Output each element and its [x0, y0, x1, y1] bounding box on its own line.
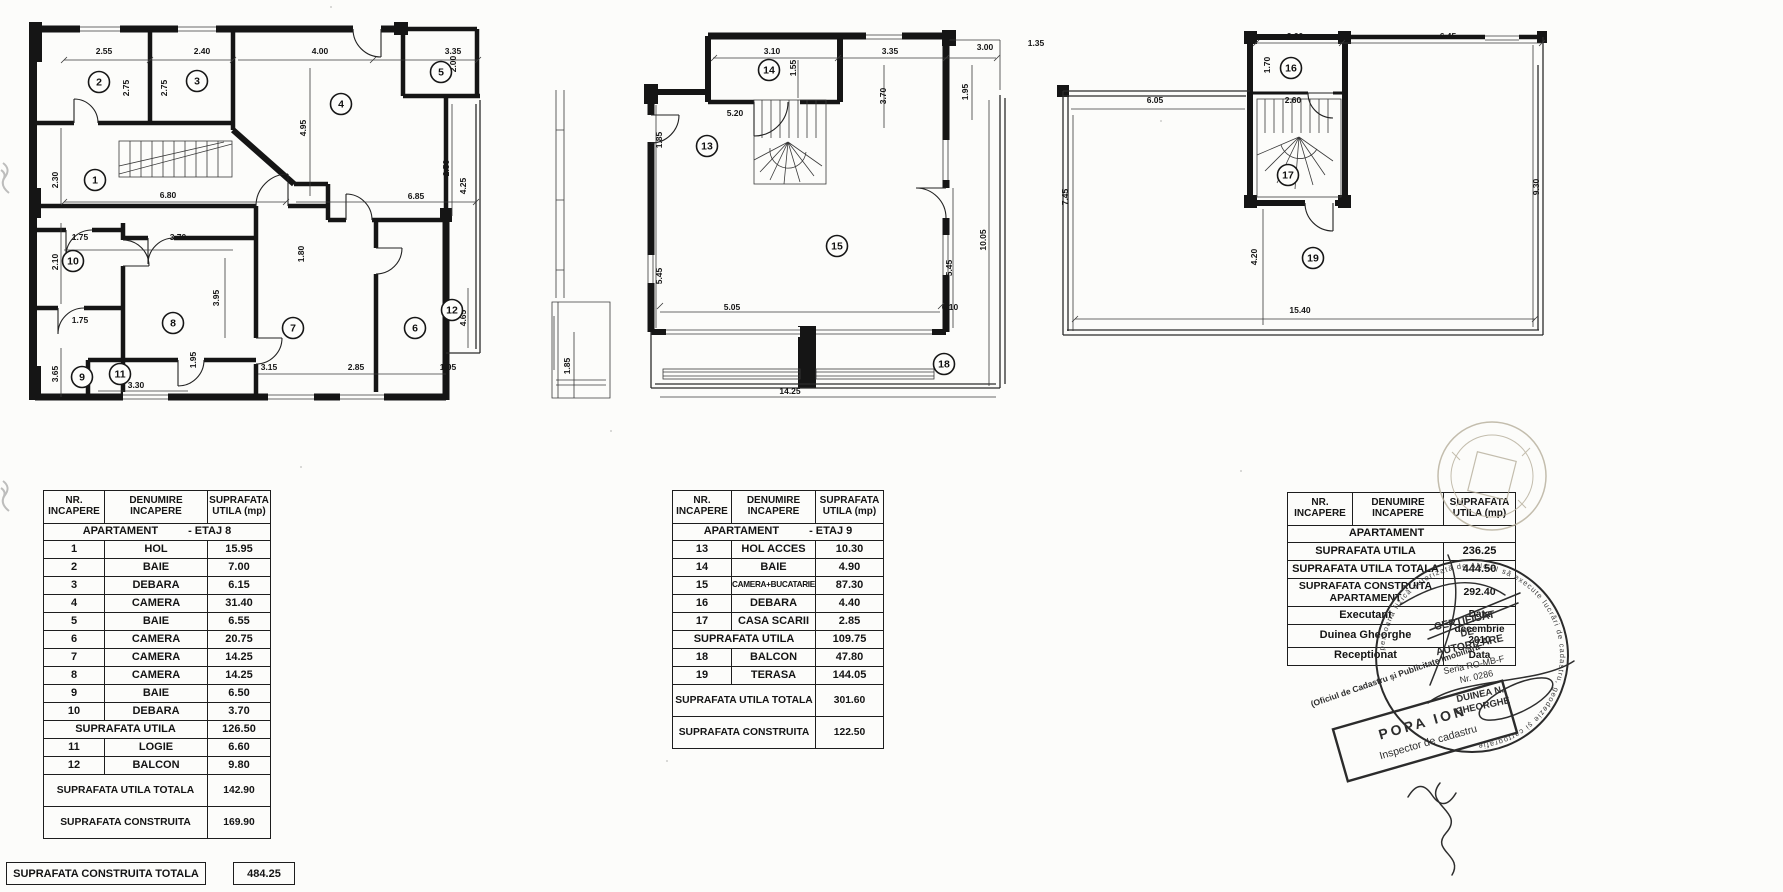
table-row: 11LOGIE6.60 — [44, 739, 271, 757]
total-label: SUPRAFATA UTILA — [44, 721, 208, 739]
dimension-label: 4.20 — [1249, 248, 1259, 265]
dimension-label: 3.10 — [764, 46, 781, 56]
column-header: SUPRAFATA UTILA (mp) — [208, 491, 271, 524]
room-name: DEBARA — [105, 703, 208, 721]
dimension-label: 5.20 — [727, 108, 744, 118]
dimension-label: 4.25 — [458, 177, 468, 194]
dimension-label: 2.75 — [121, 79, 131, 96]
dust-speck — [1240, 470, 1242, 472]
room-area: 6.60 — [208, 739, 271, 757]
table-row: 6CAMERA20.75 — [44, 631, 271, 649]
room-area: 3.70 — [208, 703, 271, 721]
table-row: 9BAIE6.50 — [44, 685, 271, 703]
dimension-label: 1.85 — [562, 357, 572, 374]
room-area: 14.25 — [208, 667, 271, 685]
room-name: LOGIE — [105, 739, 208, 757]
footer-total-label: SUPRAFATA CONSTRUITA TOTALA — [6, 862, 206, 885]
dimension-label: 3.30 — [128, 380, 145, 390]
column-header: DENUMIRE INCAPERE — [105, 491, 208, 524]
room-number: 5 — [438, 67, 444, 79]
table-row: 5BAIE6.55 — [44, 613, 271, 631]
table-etaj8: NR. INCAPEREDENUMIRE INCAPERESUPRAFATA U… — [43, 490, 271, 839]
room-area: 47.80 — [816, 649, 884, 667]
room-number: 9 — [79, 372, 85, 384]
scan-smudge-icon — [0, 476, 18, 520]
room-number: 1 — [92, 175, 98, 187]
dust-speck — [330, 6, 332, 8]
doors-etaj9 — [646, 102, 951, 218]
table-row: 19TERASA144.05 — [673, 667, 884, 685]
section-row-cell: APARTAMENT- ETAJ 8 — [44, 524, 271, 541]
dimension-label: 15.40 — [1289, 305, 1311, 315]
dimension-label: 5.45 — [654, 267, 664, 284]
table-row: APARTAMENT- ETAJ 8 — [44, 524, 271, 541]
table-row: SUPRAFATA UTILA126.50 — [44, 721, 271, 739]
room-name: BAIE — [105, 559, 208, 577]
section-label: APARTAMENT — [704, 526, 779, 538]
dimension-label: 2.60 — [1287, 31, 1304, 41]
stair-terasa — [1257, 99, 1341, 197]
dimension-label: 1.85 — [654, 131, 664, 148]
dimension-label: 3.15 — [261, 362, 278, 372]
table-row: SUPRAFATA UTILA109.75 — [673, 631, 884, 649]
dimension-label: 1.80 — [296, 245, 306, 262]
dimension-label: 2.10 — [50, 253, 60, 270]
room-area: 9.80 — [208, 757, 271, 775]
dimension-label: 1.70 — [1262, 56, 1272, 73]
total-label: SUPRAFATA UTILA TOTALA — [673, 685, 816, 717]
room-nr: 15 — [673, 577, 732, 595]
dimension-label: 3.35 — [445, 46, 462, 56]
room-number: 17 — [1282, 170, 1294, 182]
table-etaj9: NR. INCAPEREDENUMIRE INCAPERESUPRAFATA U… — [672, 490, 884, 749]
total-label: SUPRAFATA CONSTRUITA — [44, 807, 208, 839]
footer-total-value-text: 484.25 — [247, 868, 281, 880]
room-nr: 16 — [673, 595, 732, 613]
room-number: 12 — [446, 305, 458, 317]
room-name: HOL — [105, 541, 208, 559]
dimension-label: 6.85 — [408, 191, 425, 201]
total-value: 109.75 — [816, 631, 884, 649]
room-number: 10 — [67, 256, 79, 268]
room-number: 14 — [763, 65, 775, 77]
room-area: 2.85 — [816, 613, 884, 631]
column-header: SUPRAFATA UTILA (mp) — [816, 491, 884, 524]
room-name: BAIE — [105, 685, 208, 703]
table-row: 8CAMERA14.25 — [44, 667, 271, 685]
dimension-label: 2.60 — [1285, 95, 1302, 105]
dimension-label: 5.05 — [724, 302, 741, 312]
total-value: 122.50 — [816, 717, 884, 749]
dimension-label: 3.70 — [878, 87, 888, 104]
room-area: 15.95 — [208, 541, 271, 559]
table-row: SUPRAFATA CONSTRUITA122.50 — [673, 717, 884, 749]
dimension-label: 2.30 — [50, 171, 60, 188]
total-label: SUPRAFATA UTILA — [673, 631, 816, 649]
dimension-label: 3.70 — [170, 232, 187, 242]
room-number: 4 — [338, 99, 344, 111]
room-name: BAIE — [732, 559, 816, 577]
balcony-terrace-lines-etaj9 — [552, 90, 1005, 398]
room-area: 6.50 — [208, 685, 271, 703]
column-header: NR. INCAPERE — [1288, 493, 1353, 526]
dimension-label: 6.10 — [942, 302, 959, 312]
floor-plan-etaj8: 2.552.404.003.352.752.754.952.002.306.80… — [28, 8, 493, 408]
handwritten-signature — [1408, 783, 1456, 875]
room-area: 4.40 — [816, 595, 884, 613]
dimension-label: 4.00 — [312, 46, 329, 56]
dimension-label: 10.05 — [978, 229, 988, 251]
total-value: 142.90 — [208, 775, 271, 807]
room-nr: 12 — [44, 757, 105, 775]
faded-round-seal-icon — [1422, 412, 1572, 542]
table-row: 12BALCON9.80 — [44, 757, 271, 775]
room-area: 31.40 — [208, 595, 271, 613]
dimension-label: 2.40 — [194, 46, 211, 56]
dimension-label: 1.35 — [1028, 38, 1045, 48]
dimension-label: 1.55 — [788, 59, 798, 76]
room-nr: 10 — [44, 703, 105, 721]
room-number: 18 — [938, 359, 950, 371]
room-nr: 1 — [44, 541, 105, 559]
room-name: DEBARA — [105, 577, 208, 595]
dimension-label: 1.95 — [188, 351, 198, 368]
dimension-label: 3.00 — [977, 42, 994, 52]
floor-plan-etaj9: 3.103.353.001.351.555.201.853.701.955.45… — [548, 20, 1060, 412]
cadastral-plan-sheet: 2.552.404.003.352.752.754.952.002.306.80… — [0, 0, 1783, 892]
room-number: 11 — [114, 369, 125, 381]
total-label: SUPRAFATA CONSTRUITA — [673, 717, 816, 749]
stair-etaj8 — [119, 141, 232, 177]
table-row: 3DEBARA6.15 — [44, 577, 271, 595]
dimension-label: 14.25 — [779, 386, 801, 396]
table-row: 10DEBARA3.70 — [44, 703, 271, 721]
room-nr: 6 — [44, 631, 105, 649]
column-header: NR. INCAPERE — [673, 491, 732, 524]
table-row: 13HOL ACCES10.30 — [673, 541, 884, 559]
room-nr: 2 — [44, 559, 105, 577]
table-row: 14BAIE4.90 — [673, 559, 884, 577]
room-nr: 9 — [44, 685, 105, 703]
floor-plan-terasa: 2.606.451.706.052.607.454.209.3015.40161… — [1055, 25, 1555, 350]
stair-etaj9 — [754, 100, 826, 184]
table-row: 1HOL15.95 — [44, 541, 271, 559]
room-area: 6.15 — [208, 577, 271, 595]
table-row: SUPRAFATA UTILA TOTALA301.60 — [673, 685, 884, 717]
room-name: CAMERA — [105, 631, 208, 649]
dimension-label: 1.95 — [440, 362, 457, 372]
room-number: 7 — [290, 323, 296, 335]
dimension-label: 3.35 — [882, 46, 899, 56]
walls-terasa — [1057, 31, 1547, 208]
room-area: 10.30 — [816, 541, 884, 559]
total-value: 126.50 — [208, 721, 271, 739]
room-nr: 13 — [673, 541, 732, 559]
room-name: CAMERA — [105, 595, 208, 613]
room-name: CAMERA+BUCATARIE — [732, 577, 816, 595]
room-number: 16 — [1285, 63, 1297, 75]
dimension-label: 2.55 — [96, 46, 113, 56]
dimension-lines-terasa — [1071, 40, 1545, 331]
room-nr: 14 — [673, 559, 732, 577]
room-name: CAMERA — [105, 649, 208, 667]
room-name: BALCON — [105, 757, 208, 775]
table-row: 18BALCON47.80 — [673, 649, 884, 667]
section-floor-label: - ETAJ 9 — [809, 526, 852, 538]
room-nr: 8 — [44, 667, 105, 685]
total-label: SUPRAFATA UTILA TOTALA — [44, 775, 208, 807]
dimension-label: 2.75 — [159, 79, 169, 96]
dimension-label: 3.65 — [50, 365, 60, 382]
table-row: 2BAIE7.00 — [44, 559, 271, 577]
dimension-label: 7.45 — [1060, 188, 1070, 205]
room-nr: 7 — [44, 649, 105, 667]
dust-speck — [300, 466, 302, 468]
dust-speck — [610, 430, 612, 432]
room-name: CAMERA — [105, 667, 208, 685]
room-name: BALCON — [732, 649, 816, 667]
column-header: NR. INCAPERE — [44, 491, 105, 524]
dimension-label: 9.30 — [1531, 178, 1541, 195]
room-area: 14.25 — [208, 649, 271, 667]
table-row: 17CASA SCARII2.85 — [673, 613, 884, 631]
dust-speck — [666, 760, 668, 762]
dimension-label: 6.80 — [160, 190, 177, 200]
table-row: SUPRAFATA CONSTRUITA169.90 — [44, 807, 271, 839]
section-label: APARTAMENT — [83, 526, 158, 538]
room-area: 87.30 — [816, 577, 884, 595]
dimension-label: 6.05 — [1147, 95, 1164, 105]
room-number: 15 — [831, 241, 843, 253]
table-row: 15CAMERA+BUCATARIE87.30 — [673, 577, 884, 595]
room-number: 2 — [96, 77, 102, 89]
dust-speck — [1160, 120, 1162, 122]
room-nr: 17 — [673, 613, 732, 631]
room-nr: 18 — [673, 649, 732, 667]
room-number: 3 — [194, 76, 200, 88]
parapet-terasa — [1063, 37, 1543, 335]
room-nr: 19 — [673, 667, 732, 685]
room-area: 7.00 — [208, 559, 271, 577]
dimension-label: 2.85 — [348, 362, 365, 372]
column-header: DENUMIRE INCAPERE — [732, 491, 816, 524]
dimension-label: 5.45 — [944, 259, 954, 276]
table-row: APARTAMENT- ETAJ 9 — [673, 524, 884, 541]
dimension-label: 1.75 — [72, 315, 89, 325]
room-number: 19 — [1307, 253, 1319, 265]
room-nr: 4 — [44, 595, 105, 613]
dimension-label: 6.45 — [1440, 31, 1457, 41]
room-name: DEBARA — [732, 595, 816, 613]
total-value: 169.90 — [208, 807, 271, 839]
total-value: 301.60 — [816, 685, 884, 717]
scan-smudge-icon — [0, 158, 18, 202]
room-number: 8 — [170, 318, 176, 330]
table-row: 7CAMERA14.25 — [44, 649, 271, 667]
dimension-label: 1.75 — [72, 232, 89, 242]
table-row: SUPRAFATA UTILA TOTALA142.90 — [44, 775, 271, 807]
footer-total-label-text: SUPRAFATA CONSTRUITA TOTALA — [13, 868, 199, 880]
room-nr: 3 — [44, 577, 105, 595]
room-nr: 11 — [44, 739, 105, 757]
table-row: 16DEBARA4.40 — [673, 595, 884, 613]
room-number: 6 — [412, 323, 418, 335]
doors-terasa — [1305, 93, 1333, 231]
room-number: 13 — [701, 141, 713, 153]
room-area: 6.55 — [208, 613, 271, 631]
room-name: HOL ACCES — [732, 541, 816, 559]
room-area: 4.90 — [816, 559, 884, 577]
section-floor-label: - ETAJ 8 — [188, 526, 231, 538]
dimension-lines-etaj9 — [574, 55, 1000, 398]
room-name: BAIE — [105, 613, 208, 631]
dimension-label: 1.95 — [960, 83, 970, 100]
room-name: TERASA — [732, 667, 816, 685]
section-row-cell: APARTAMENT- ETAJ 9 — [673, 524, 884, 541]
labels-terasa: 2.606.451.706.052.607.454.209.3015.40161… — [1060, 31, 1541, 315]
room-area: 20.75 — [208, 631, 271, 649]
room-area: 144.05 — [816, 667, 884, 685]
stamps-signatures-block: persoană fizică autorizată de ANCPI să e… — [1280, 535, 1620, 892]
dimension-label: 4.95 — [298, 119, 308, 136]
table-row: 4CAMERA31.40 — [44, 595, 271, 613]
dimension-label: 2.50 — [441, 159, 451, 176]
room-nr: 5 — [44, 613, 105, 631]
dimension-label: 3.95 — [211, 289, 221, 306]
room-name: CASA SCARII — [732, 613, 816, 631]
footer-total-value: 484.25 — [233, 862, 295, 885]
